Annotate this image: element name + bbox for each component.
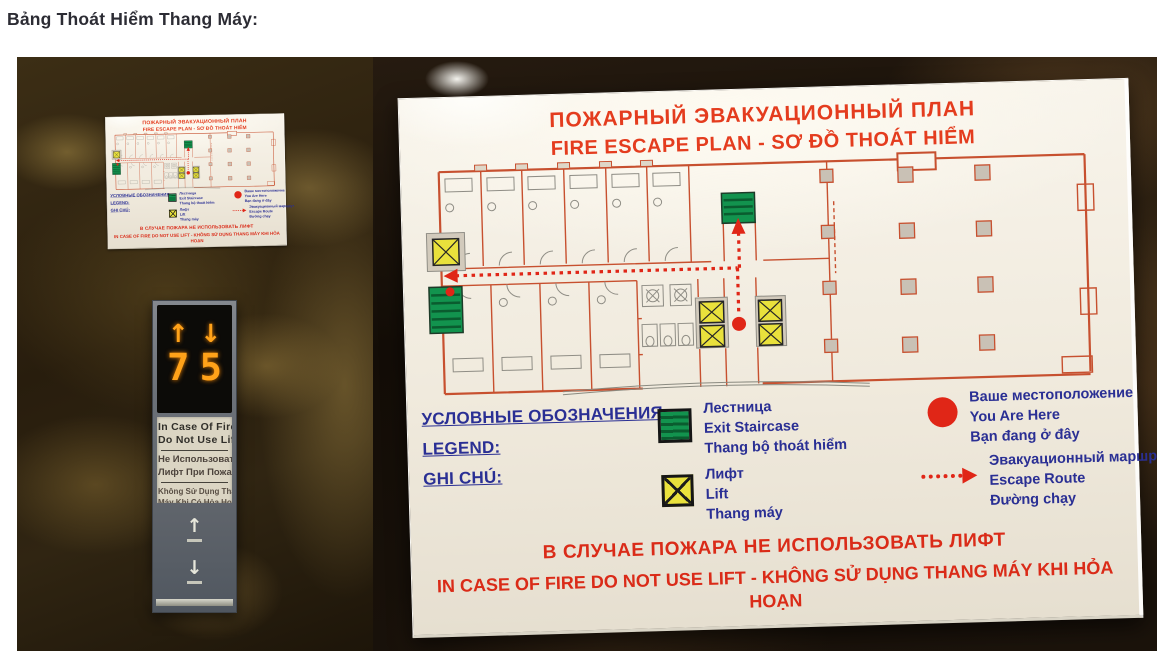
here-label-vi: Bạn đang ở đây xyxy=(970,423,1134,448)
button-bar xyxy=(187,539,202,542)
photo-fire-escape-plan: ПОЖАРНЫЙ ЭВАКУАЦИОННЫЙ ПЛАН FIRE ESCAPE … xyxy=(373,57,1157,651)
legend-item-staircase: Лестница Exit Staircase Thang bộ thoát h… xyxy=(168,190,214,206)
elevator-floor-display: ↑ 7 ↓ 5 xyxy=(157,305,232,413)
legend-headings: УСЛОВНЫЕ ОБОЗНАЧЕНИЯ: LEGEND: GHI CHÚ: xyxy=(421,398,671,495)
legend-item-you-are-here: Ваше местоположение You Are Here Bạn đan… xyxy=(927,383,1135,449)
notice-en-line1: In Case Of Fire xyxy=(158,421,231,434)
legend-headings: УСЛОВНЫЕ ОБОЗНАЧЕНИЯ: LEGEND: GHI CHÚ: xyxy=(110,191,171,214)
blog-page: Bảng Thoát Hiểm Thang Máy: ПОЖАРНЫЙ ЭВАК… xyxy=(0,8,1157,651)
mini-fire-escape-sign: ПОЖАРНЫЙ ЭВАКУАЦИОННЫЙ ПЛАН FIRE ESCAPE … xyxy=(105,117,289,253)
legend-item-staircase: Лестница Exit Staircase Thang bộ thoát h… xyxy=(657,395,847,460)
legend-heading-vi: GHI CHÚ: xyxy=(423,458,671,495)
route-label-vi: Đường chạy xyxy=(249,213,294,219)
photo-elevator-wall: ПОЖАРНЫЙ ЭВАКУАЦИОННЫЙ ПЛАН FIRE ESCAPE … xyxy=(17,57,373,651)
up-floor-number: 7 xyxy=(167,348,189,388)
up-arrow-led-icon: ↑ xyxy=(168,321,189,347)
exit-staircase-icon xyxy=(168,193,177,202)
legend-item-lift: Лифт Lift Thang máy xyxy=(661,463,783,526)
route-label-vi: Đường chạy xyxy=(990,486,1157,511)
button-bar xyxy=(187,581,202,584)
lift-label-en: Lift xyxy=(706,483,783,505)
floor-plan-drawing xyxy=(108,130,281,192)
down-indicator: ↓ 5 xyxy=(200,321,222,413)
notice-ru-line2: Лифт При Пожаре xyxy=(158,467,231,480)
legend-item-escape-route: Эвакуационный маршрут Escape Route Đường… xyxy=(921,446,1157,513)
notice-vietnamese: Không Sử Dụng Thang Máy Khi Có Hỏa Hoạn xyxy=(158,486,231,503)
plate-divider xyxy=(161,482,228,483)
lift-icon xyxy=(661,474,694,507)
exit-staircase-icon xyxy=(657,408,692,443)
you-are-here-dot-icon xyxy=(927,397,958,428)
down-arrow-icon: ↓ xyxy=(187,559,203,578)
fire-escape-sign: ПОЖАРНЫЙ ЭВАКУАЦИОННЫЙ ПЛАН FIRE ESCAPE … xyxy=(398,78,1144,638)
panel-footer-strip xyxy=(156,599,233,606)
notice-russian: Не Использовать Лифт При Пожаре xyxy=(158,454,231,479)
staircase-label-vi: Thang bộ thoát hiểm xyxy=(180,200,215,206)
fire-escape-sign: ПОЖАРНЫЙ ЭВАКУАЦИОННЫЙ ПЛАН FIRE ESCAPE … xyxy=(105,113,287,249)
down-floor-number: 5 xyxy=(200,348,222,388)
legend-heading-vi: GHI CHÚ: xyxy=(111,206,172,215)
legend-item-you-are-here: Ваше местоположение You Are Here Bạn đan… xyxy=(234,188,285,204)
down-arrow-led-icon: ↓ xyxy=(200,321,221,347)
photo-collage: ПОЖАРНЫЙ ЭВАКУАЦИОННЫЙ ПЛАН FIRE ESCAPE … xyxy=(17,57,1157,651)
floor-plan-drawing xyxy=(408,145,1114,401)
you-are-here-dot-icon xyxy=(234,191,242,199)
legend-item-lift: Лифт Lift Thang máy xyxy=(169,207,199,222)
lift-label-vi: Thang máy xyxy=(180,217,199,222)
escape-route-arrow-icon xyxy=(233,208,247,212)
elevator-indicator-panel: ↑ 7 ↓ 5 In Case Of Fire Do Not Use Lift xyxy=(152,300,237,613)
lift-label-vi: Thang máy xyxy=(706,503,783,525)
notice-vi-line1: Không Sử Dụng Thang xyxy=(158,486,231,497)
up-arrow-icon: ↑ xyxy=(187,517,203,536)
staircase-label-vi: Thang bộ thoát hiểm xyxy=(704,435,847,459)
up-indicator: ↑ 7 xyxy=(167,321,189,413)
plate-divider xyxy=(161,450,228,451)
call-down-button: ↓ xyxy=(187,559,203,584)
call-up-button: ↑ xyxy=(187,517,203,542)
fire-notice-plate: In Case Of Fire Do Not Use Lift Не Испол… xyxy=(157,417,232,503)
lift-icon xyxy=(169,210,177,218)
notice-vi-line2: Máy Khi Có Hỏa Hoạn xyxy=(158,497,231,503)
notice-english: In Case Of Fire Do Not Use Lift xyxy=(158,421,231,447)
legend-item-escape-route: Эвакуационный маршрут Escape Route Đường… xyxy=(233,203,295,219)
escape-route-arrow-icon xyxy=(921,467,977,485)
lift-label-ru: Лифт xyxy=(705,463,782,485)
notice-en-line2: Do Not Use Lift xyxy=(158,434,231,447)
here-label-vi: Bạn đang ở đây xyxy=(245,198,285,204)
legend-heading-ru: УСЛОВНЫЕ ОБОЗНАЧЕНИЯ: xyxy=(110,191,171,200)
warning-english-vietnamese: IN CASE OF FIRE DO NOT USE LIFT - KHÔNG … xyxy=(108,230,286,245)
notice-ru-line1: Не Использовать xyxy=(158,454,231,467)
call-buttons: ↑ ↓ xyxy=(153,517,236,584)
page-title: Bảng Thoát Hiểm Thang Máy: xyxy=(7,8,1157,30)
